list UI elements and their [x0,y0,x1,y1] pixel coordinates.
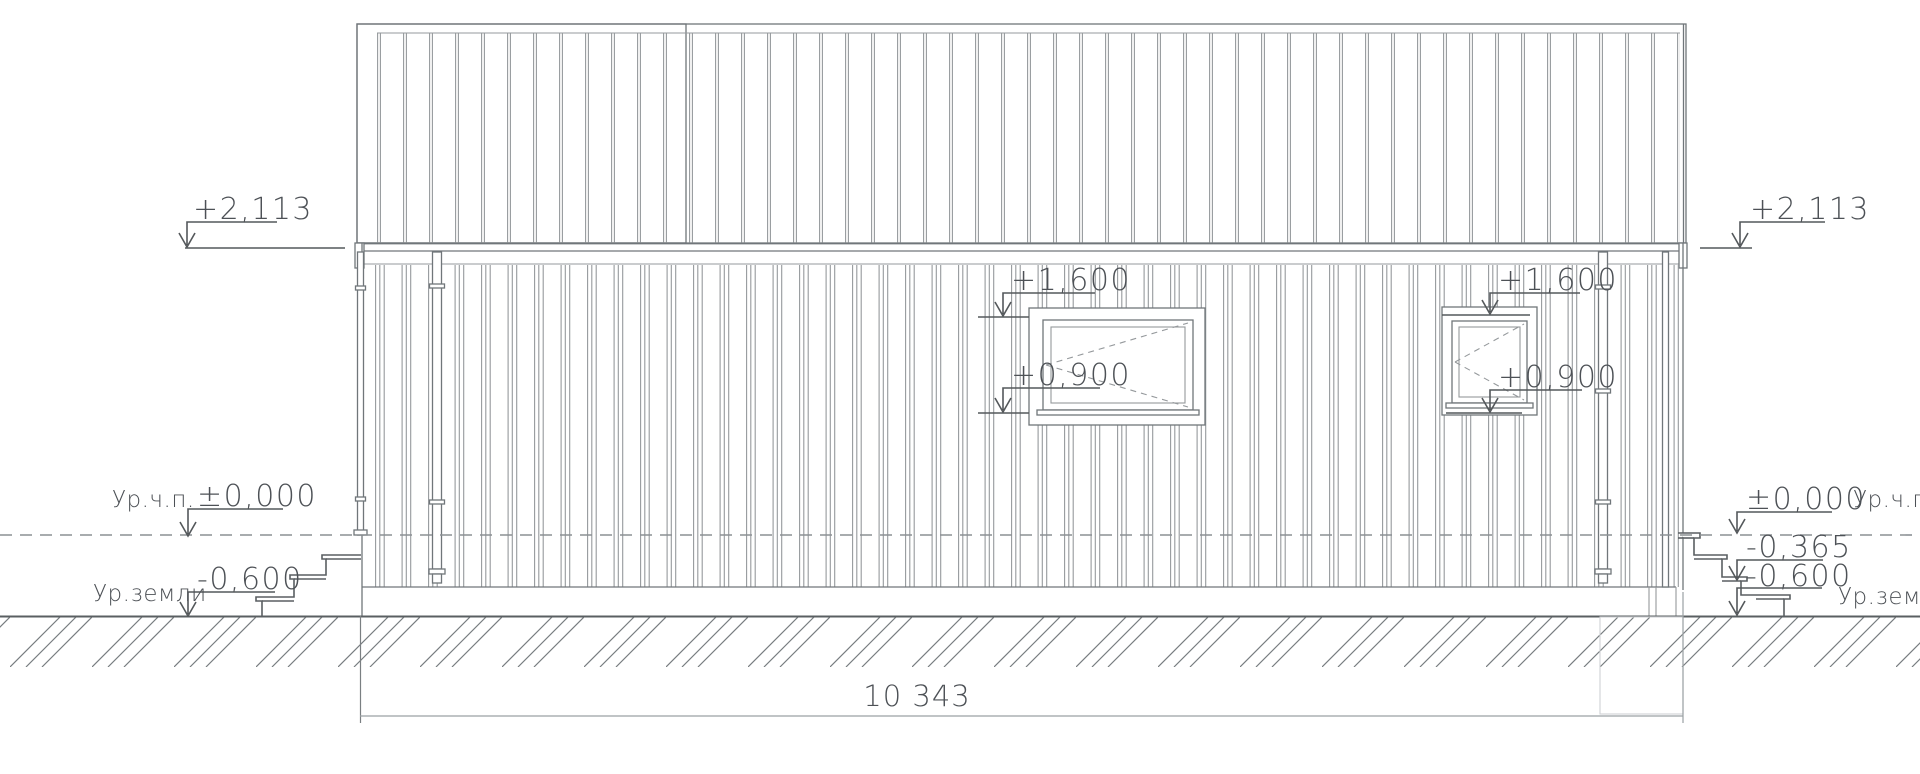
marker-value: +2,113 [1750,192,1870,227]
marker-floor-right: ±0,000 [1729,482,1866,533]
pipe-bracket [430,284,445,288]
pipe-bracket [430,500,445,504]
marker-value: ±0,000 [197,479,317,514]
pipe-outlet [1595,569,1611,574]
pipe-bracket [356,286,366,290]
downspout-right-corner [1663,252,1669,587]
marker-floor-left: ±0,000 [180,479,317,536]
marker-value: +0,900 [1011,358,1131,393]
pipe-outlet-foot [433,574,442,583]
pipe-bracket [356,497,366,501]
marker-value: +2,113 [193,192,313,227]
pipe-outlet-foot [1599,574,1608,583]
label-ground-right: Ур.земли [1838,584,1920,610]
ground [0,617,1920,668]
elevation-drawing: 10 343 +2,113 +2,113 +1,600 +0,900 +1,60… [0,0,1920,774]
marker-value: -0,600 [197,562,303,597]
marker-eave-right: +2,113 [1700,192,1870,248]
roof-seam-field [377,33,1680,243]
marker-value: ±0,000 [1746,482,1866,517]
marker-value: +1,600 [1011,263,1131,298]
window-sill [1037,410,1199,415]
label-floor-right: Ур.ч.п. [1853,487,1920,513]
label-ground-left: Ур.земли [93,581,207,607]
dimension-text: 10 343 [863,679,970,713]
ground-hatch [0,617,1920,667]
roof [357,24,1686,243]
marker-value: +0,900 [1498,360,1618,395]
label-floor-left: Ур.ч.п. [112,487,195,513]
pipe-outlet [429,569,445,574]
marker-value: -0,600 [1746,559,1852,594]
marker-ground-right: -0,600 [1729,559,1852,615]
marker-value: +1,600 [1498,263,1618,298]
marker-eave-left: +2,113 [179,192,345,248]
wall [362,243,1683,616]
pipe-bracket [1596,500,1611,504]
